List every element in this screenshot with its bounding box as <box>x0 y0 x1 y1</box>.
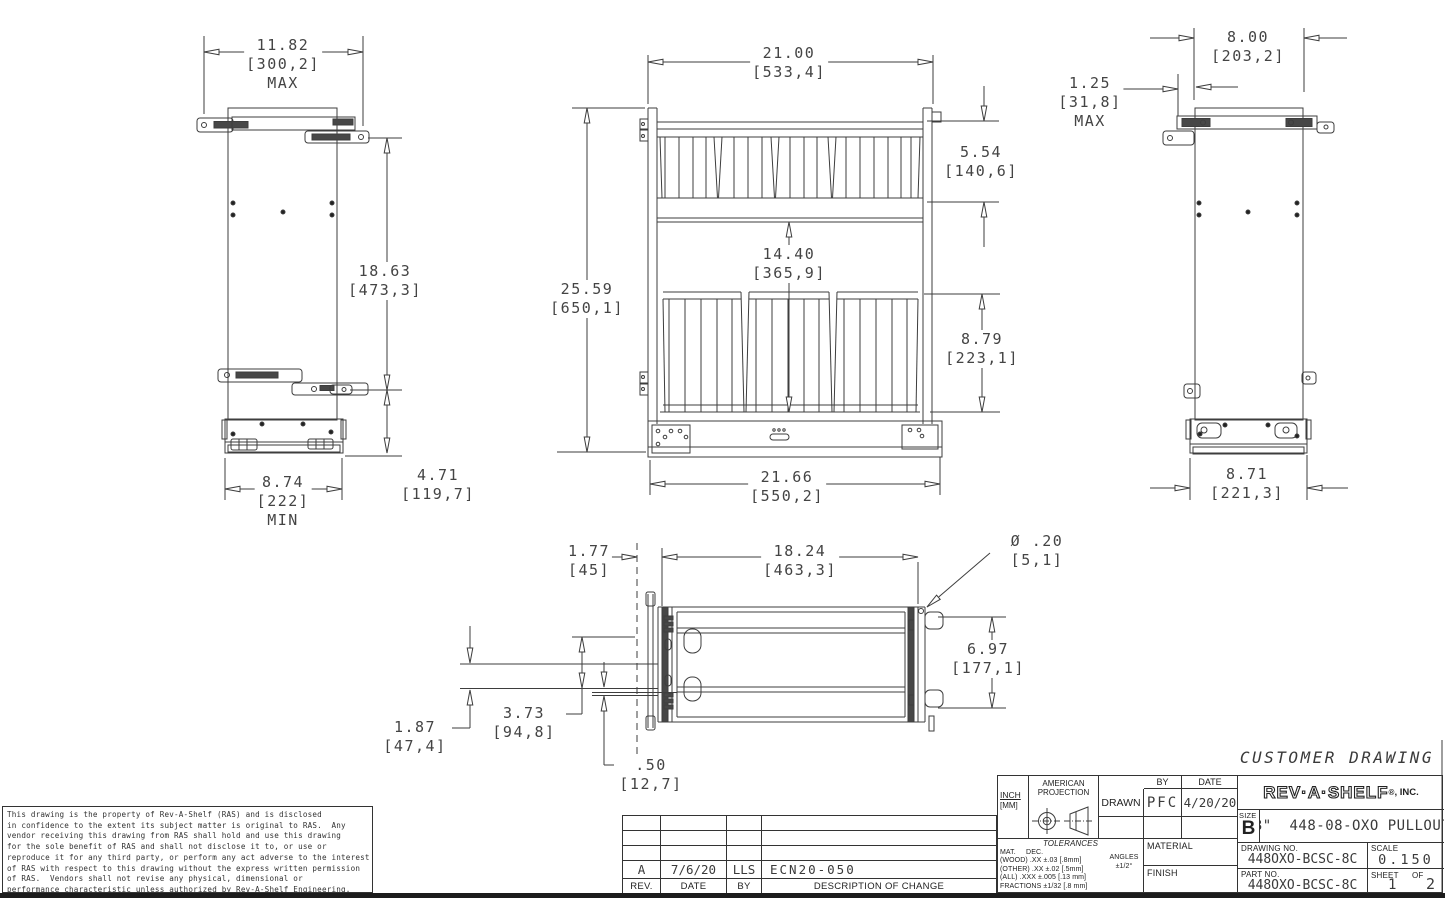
dim-front-height: 25.59 [650,1] <box>548 280 626 318</box>
by-header: BY <box>727 879 762 894</box>
dim-side-height-lower: 4.71 [119,7] <box>399 466 477 504</box>
rev-description: ECN20-050 <box>762 861 997 879</box>
rev-a-shelf-logo: REV·A·SHELF <box>1263 783 1388 803</box>
drawn-by-value: PFC <box>1144 789 1182 817</box>
dim-slide-width: 1.87 [47,4] <box>381 718 448 756</box>
drawn-block: BY DATE DRAWN PFC 4/20/20 <box>1099 776 1238 839</box>
lower-basket-slats <box>663 292 918 412</box>
dim-slide-offset: 3.73 [94,8] <box>490 704 557 742</box>
by-label: BY <box>1144 776 1182 789</box>
rev-date: 7/6/20 <box>661 861 727 879</box>
dim-right-width: 8.00 [203,2] <box>1209 28 1287 66</box>
dim-side-height-upper: 18.63 [473,3] <box>346 262 424 300</box>
title-block: INCH [MM] AMERICAN PROJECTION BY DATE DR… <box>997 775 1443 893</box>
dim-top-width-max: 11.82 [300,2] MAX <box>244 36 322 93</box>
projection-cell: AMERICAN PROJECTION <box>1029 776 1099 839</box>
tolerances-cell: TOLERANCES MAT. DEC. (WOOD) .XX ±.03 [.8… <box>998 839 1144 894</box>
size-cell: SIZE B <box>1238 810 1260 843</box>
dim-basket-low-height: 8.79 [223,1] <box>943 330 1021 368</box>
dim-half-offset: .50 [12,7] <box>617 756 684 794</box>
dim-basket-top-height: 5.54 [140,6] <box>942 143 1020 181</box>
date-label: DATE <box>1182 776 1238 789</box>
dim-front-width-bottom: 21.66 [550,2] <box>748 468 826 506</box>
customer-drawing-label: CUSTOMER DRAWING <box>1228 748 1434 767</box>
drawing-title: 8" 448-08-OXO PULLOUT <box>1260 810 1444 843</box>
rev-value: A <box>623 861 661 879</box>
size-value: B <box>1238 818 1259 840</box>
dim-plan-width: 18.24 [463,3] <box>761 542 839 580</box>
sheet-border-bottom <box>0 893 1445 898</box>
rev-by: LLS <box>727 861 762 879</box>
revision-table: A 7/6/20 LLS ECN20-050 REV. DATE BY DESC… <box>622 815 997 893</box>
drawn-date-value: 4/20/20 <box>1182 789 1238 817</box>
dim-depth-min: 8.74 [222] MIN <box>255 473 312 530</box>
description-header: DESCRIPTION OF CHANGE <box>762 879 997 894</box>
date-header: DATE <box>661 879 727 894</box>
dim-plan-offset-front: 1.77 [45] <box>566 542 612 580</box>
units-cell: INCH [MM] <box>998 776 1029 839</box>
rev-header: REV. <box>623 879 661 894</box>
dim-mid-height: 14.40 [365,9] <box>750 245 828 283</box>
drawn-label: DRAWN <box>1099 789 1144 817</box>
angles-tolerance: ANGLES ±1/2° <box>1107 854 1141 871</box>
top-basket-slats <box>660 137 920 198</box>
dim-hole-dia: Ø .20 [5,1] <box>1009 532 1066 570</box>
scale-cell: SCALE 0.150 <box>1368 843 1444 869</box>
legal-notice: This drawing is the property of Rev-A-Sh… <box>2 806 373 893</box>
finish-cell: FINISH <box>1144 866 1238 894</box>
part-no-cell: PART NO. 448OXO-BCSC-8C <box>1238 869 1368 894</box>
logo-cell: REV·A·SHELF ® , INC. <box>1238 776 1444 810</box>
dim-rear-offset-max: 1.25 [31,8] MAX <box>1056 74 1123 131</box>
drawing-no-cell: DRAWING NO. 448OXO-BCSC-8C <box>1238 843 1368 869</box>
sheet-cell: SHEET OF 1 2 <box>1368 869 1444 894</box>
dim-plan-depth: 6.97 [177,1] <box>949 640 1027 678</box>
right-side-view <box>1094 28 1348 500</box>
dim-right-depth-bottom: 8.71 [221,3] <box>1208 465 1286 503</box>
material-cell: MATERIAL <box>1144 839 1238 866</box>
dim-front-width-top: 21.00 [533,4] <box>750 44 828 82</box>
drawing-sheet: 11.82 [300,2] MAX 18.63 [473,3] 8.74 [22… <box>0 0 1445 898</box>
